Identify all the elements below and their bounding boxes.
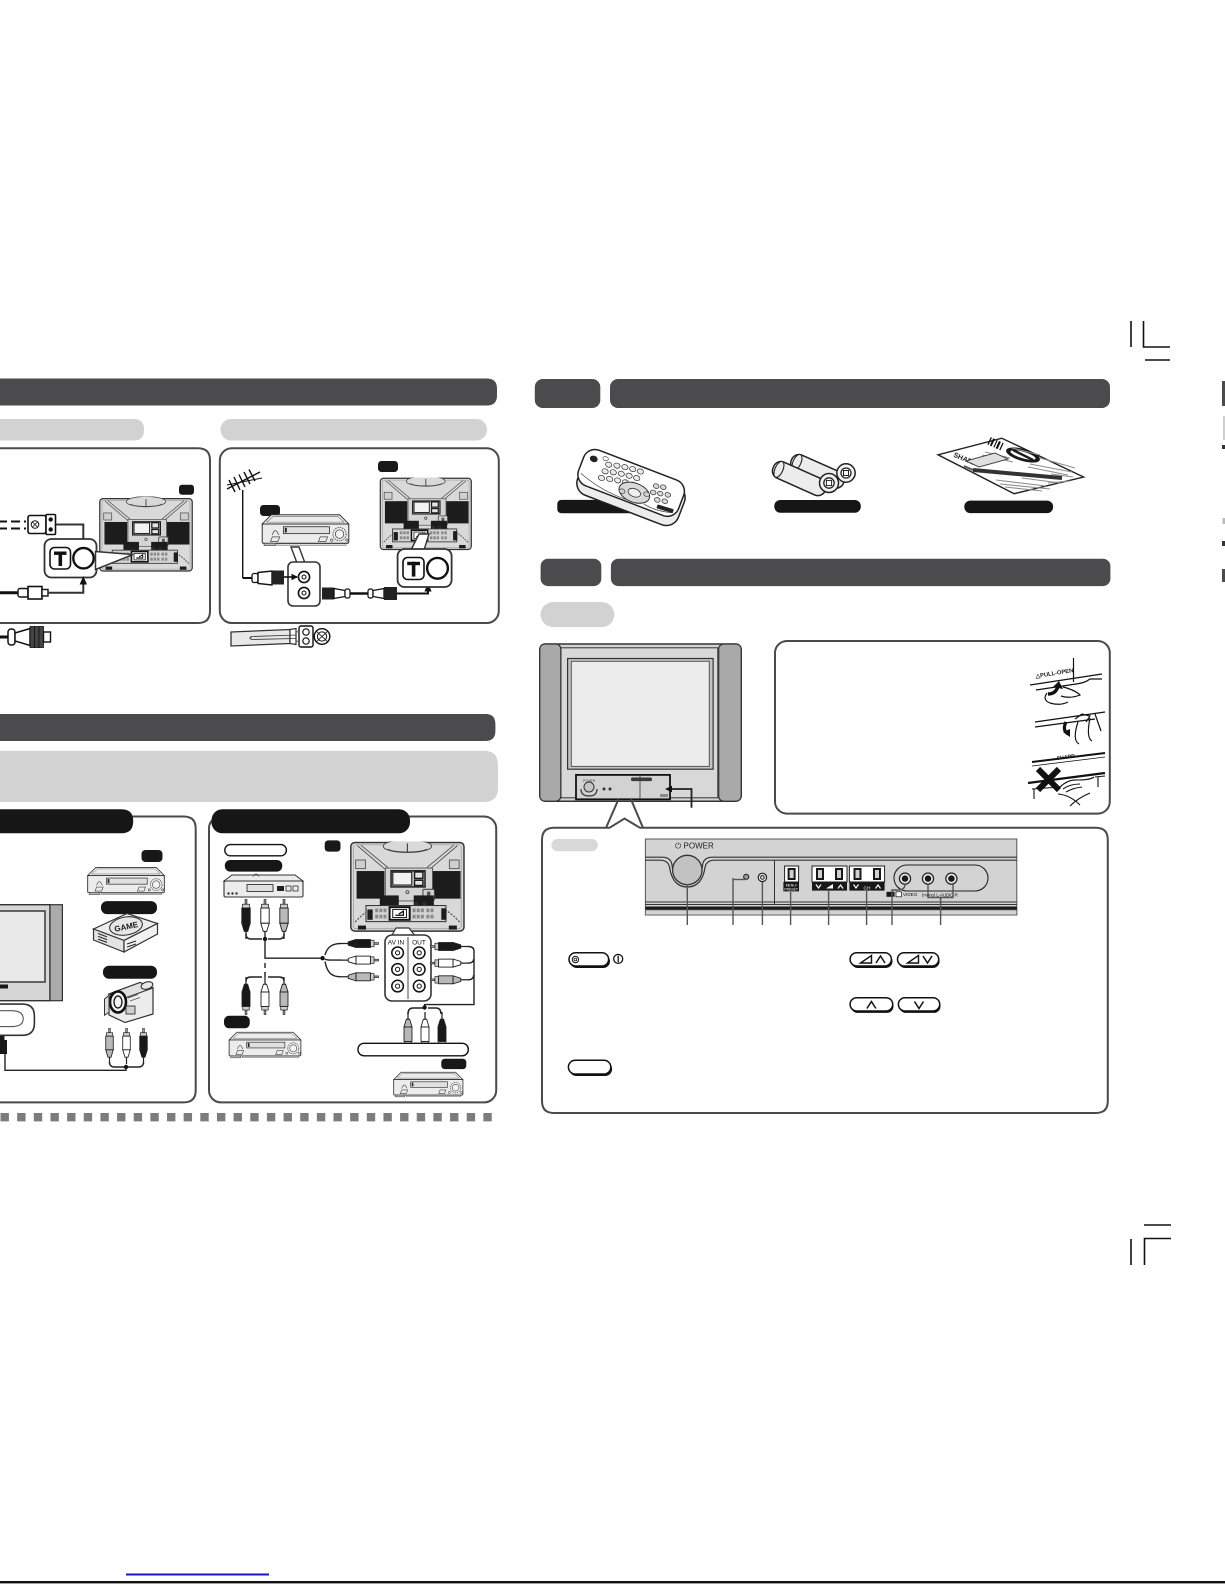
svg-text:OUT: OUT [412,940,426,947]
svg-text:AV IN: AV IN [388,940,405,947]
svg-text:VIDEO: VIDEO [903,892,918,897]
svg-text:PRESET: PRESET [784,887,798,891]
svg-text:CH: CH [864,885,871,891]
svg-text:⏻ POWER: ⏻ POWER [675,842,714,851]
svg-text:POWER: POWER [583,779,596,783]
